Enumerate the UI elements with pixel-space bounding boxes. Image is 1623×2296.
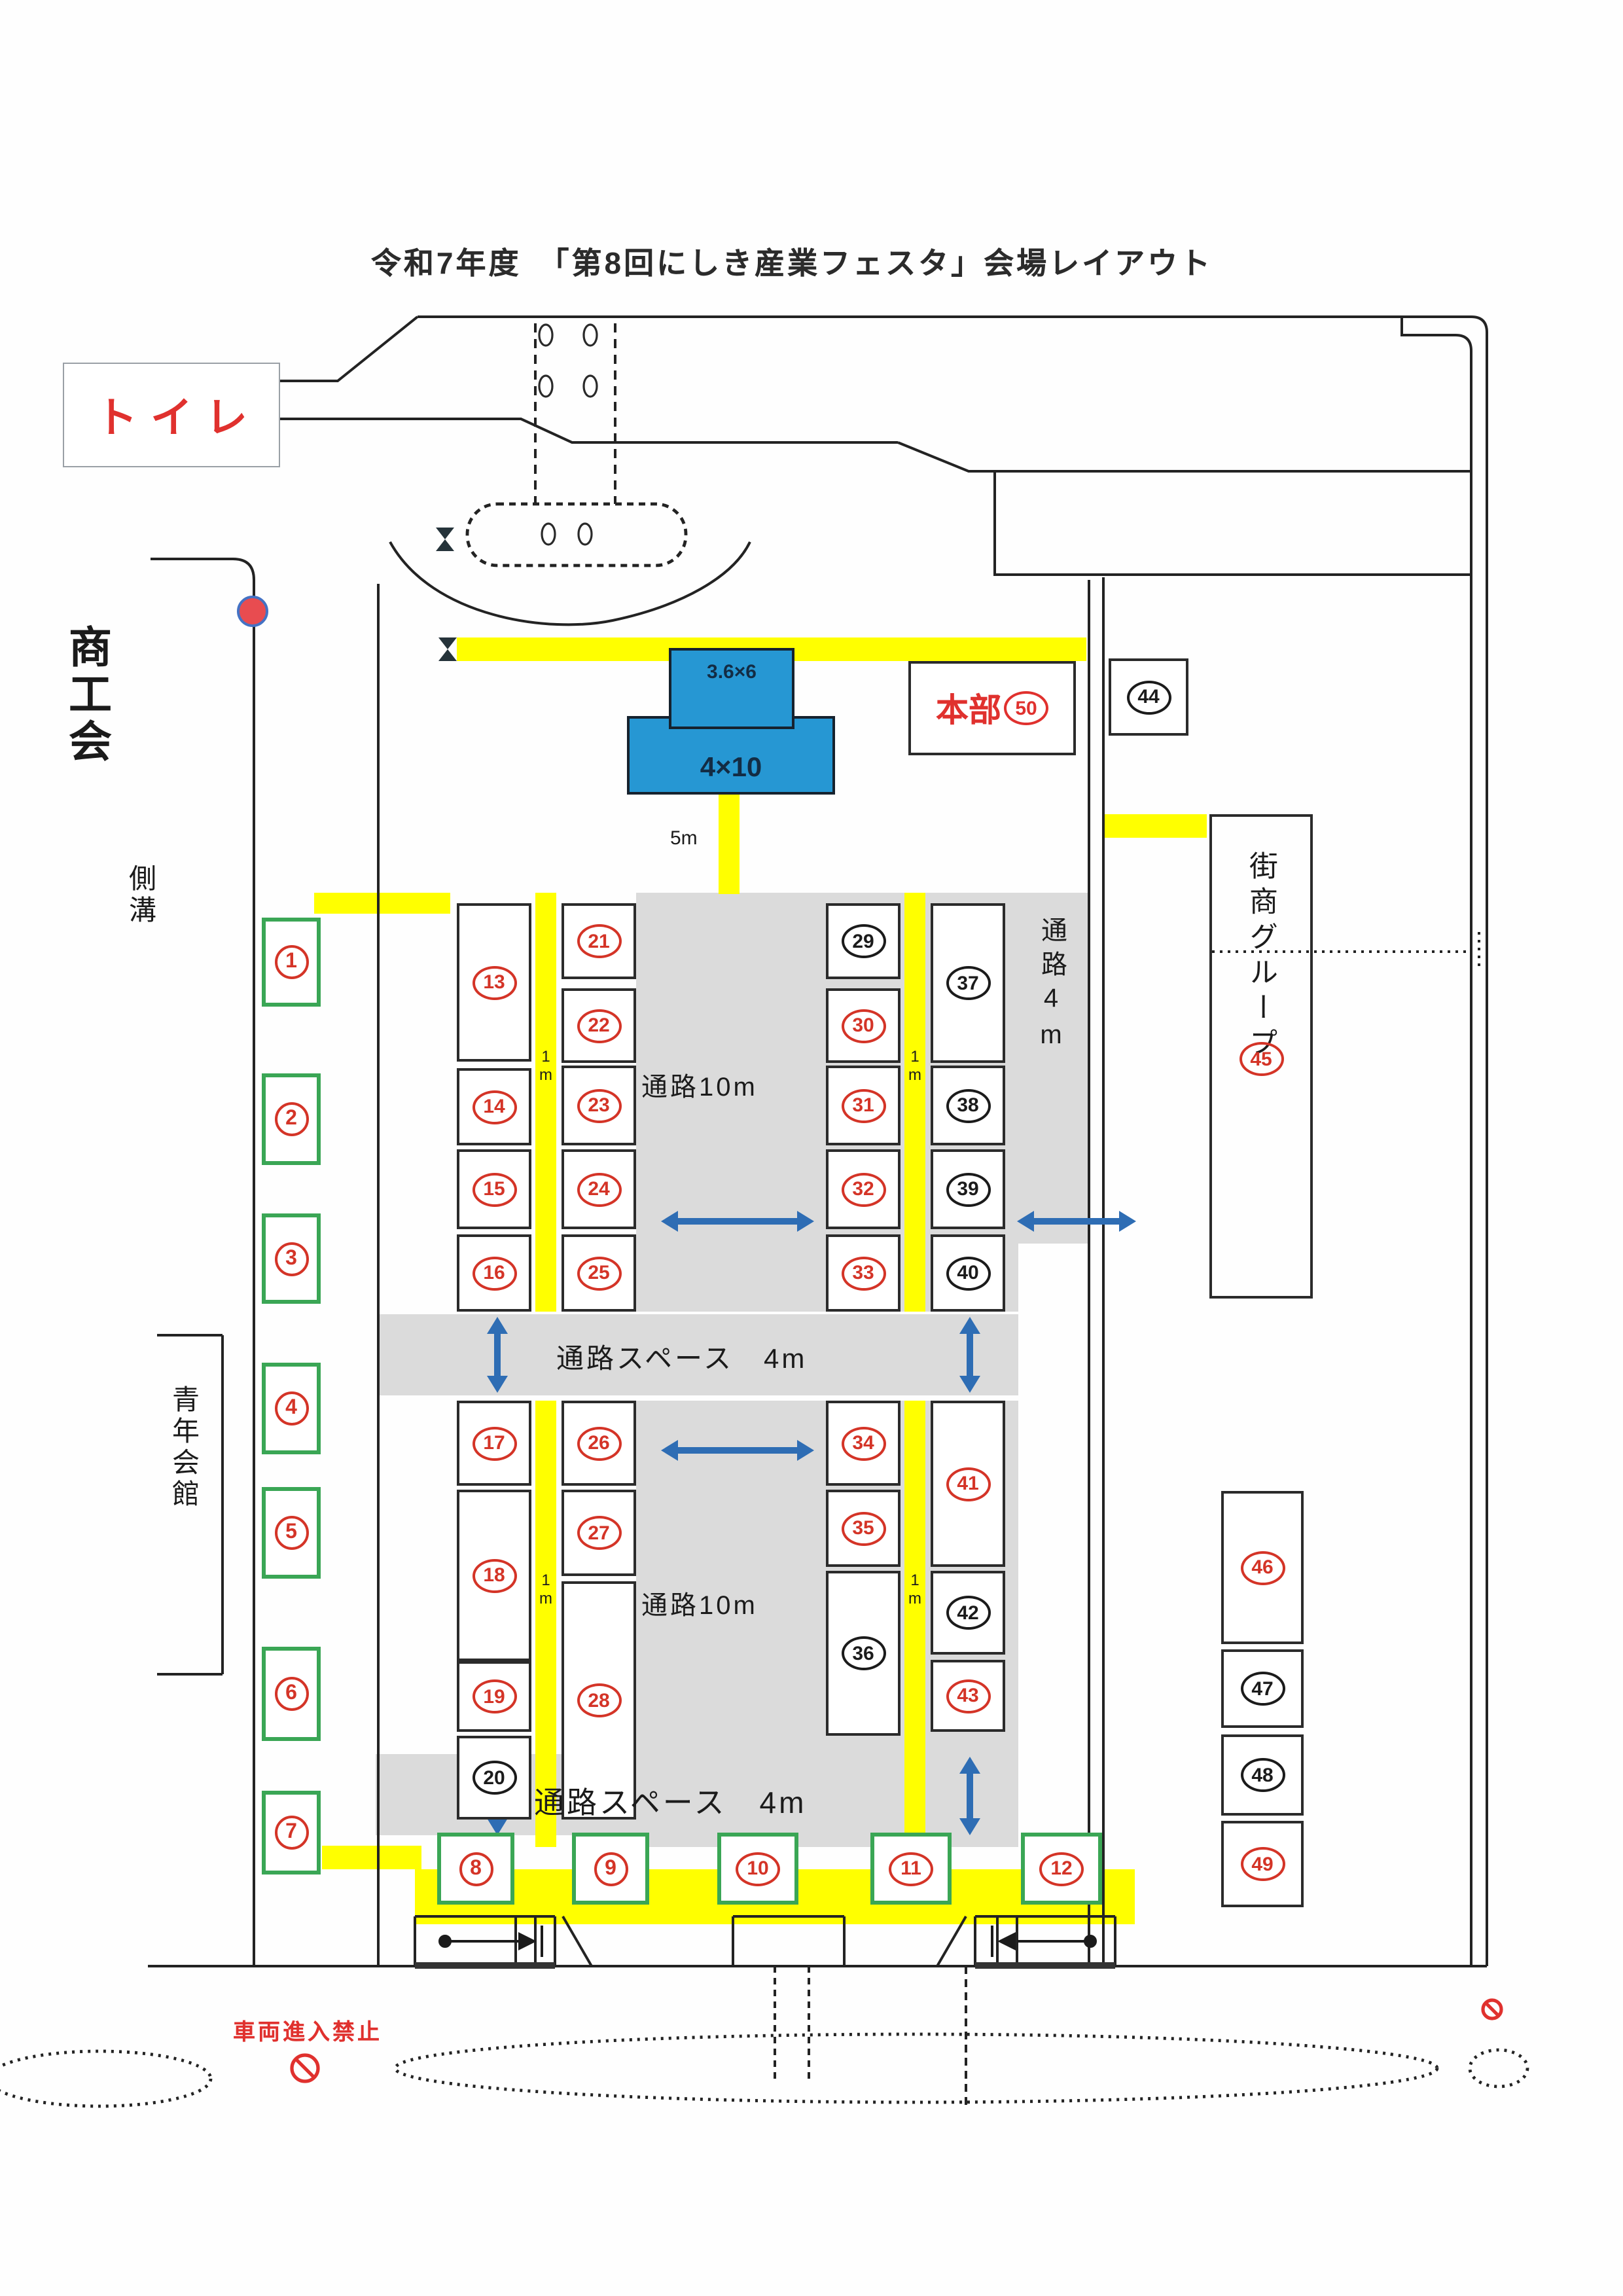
booth-5: 5 xyxy=(262,1487,321,1579)
entrance-bay-curve xyxy=(390,542,750,624)
booth-46: 46 xyxy=(1221,1491,1304,1644)
booth-9: 9 xyxy=(572,1833,649,1905)
booth-number: 49 xyxy=(1240,1847,1285,1881)
booth-number: 9 xyxy=(594,1852,628,1886)
booth-25: 25 xyxy=(562,1234,636,1312)
booth-number: 17 xyxy=(472,1426,516,1460)
gate-arrow-right xyxy=(450,1926,542,1957)
booth-number: 4 xyxy=(274,1391,308,1426)
road-toilet-north xyxy=(277,317,418,381)
booth-number: 43 xyxy=(946,1679,990,1713)
booth-15: 15 xyxy=(457,1149,531,1229)
booth-47: 47 xyxy=(1221,1649,1304,1728)
hq-box: 本部 50 xyxy=(908,661,1076,755)
booth-number: 24 xyxy=(577,1172,621,1206)
booth-number: 7 xyxy=(274,1816,308,1850)
no-entry-slash-small xyxy=(1486,2003,1499,2016)
tree-icon xyxy=(539,376,552,397)
gap-1m-label: 1m xyxy=(906,1047,924,1084)
booth-31: 31 xyxy=(826,1066,901,1145)
yellow-strip-bottom-thin xyxy=(322,1846,421,1869)
aisle-space-upper-label: 通路スペース 4m xyxy=(556,1338,807,1377)
road-island-right xyxy=(1470,2050,1527,2087)
lot-north-notch xyxy=(995,471,1471,575)
yellow-strip-1m-upper-right xyxy=(904,893,925,1312)
gate-arrow-dot xyxy=(440,1936,450,1946)
booth-number: 16 xyxy=(472,1256,516,1290)
tent-4x10-label: 4×10 xyxy=(700,753,762,792)
tent-3.6x6-label: 3.6×6 xyxy=(707,651,757,683)
yellow-strip-gaishou xyxy=(1103,814,1207,838)
tent-3.6x6: 3.6×6 xyxy=(669,648,794,729)
no-entry-icon xyxy=(292,2055,318,2081)
booth-number: 39 xyxy=(946,1172,990,1206)
aisle-10m-upper-label: 通路10m xyxy=(641,1066,758,1103)
tree-icon xyxy=(539,325,552,346)
booth-14: 14 xyxy=(457,1068,531,1145)
booth-number: 44 xyxy=(1126,680,1171,714)
hq-number: 50 xyxy=(1004,691,1048,725)
booth-number: 48 xyxy=(1240,1758,1285,1792)
tree-icon xyxy=(542,524,555,545)
booth-17: 17 xyxy=(457,1401,531,1486)
booth-number: 21 xyxy=(577,924,621,958)
toilet-label: トイレ xyxy=(82,385,260,445)
booth-number: 14 xyxy=(472,1090,516,1124)
street-vendor-number: 45 xyxy=(1239,1042,1283,1076)
booth-11: 11 xyxy=(870,1833,952,1905)
approach-5m-label: 5m xyxy=(670,827,698,850)
booth-3: 3 xyxy=(262,1213,321,1304)
booth-number: 47 xyxy=(1240,1672,1285,1706)
no-entry-icon-small xyxy=(1483,2000,1501,2018)
booth-number: 15 xyxy=(472,1172,516,1206)
booth-36: 36 xyxy=(826,1571,901,1736)
booth-32: 32 xyxy=(826,1149,901,1229)
booth-number: 13 xyxy=(472,965,516,999)
booth-number: 32 xyxy=(841,1172,885,1206)
booth-7: 7 xyxy=(262,1791,321,1874)
booth-13: 13 xyxy=(457,903,531,1062)
booth-37: 37 xyxy=(931,903,1005,1063)
booth-number: 46 xyxy=(1240,1551,1285,1585)
booth-number: 18 xyxy=(472,1558,516,1592)
booth-35: 35 xyxy=(826,1490,901,1567)
booth-number: 2 xyxy=(274,1102,308,1136)
aisle-10m-lower-label: 通路10m xyxy=(641,1584,758,1622)
no-entry-slash xyxy=(296,2059,314,2077)
gate-right-threshold xyxy=(975,1962,1115,1969)
booth-41: 41 xyxy=(931,1401,1005,1567)
booth-6: 6 xyxy=(262,1647,321,1741)
booth-number: 36 xyxy=(841,1636,885,1670)
booth-49: 49 xyxy=(1221,1821,1304,1907)
no-vehicle-entry-label: 車両進入禁止 xyxy=(233,2013,382,2046)
booth-16: 16 xyxy=(457,1234,531,1312)
booth-number: 6 xyxy=(274,1677,308,1711)
youth-hall-label: 青年会館 xyxy=(164,1385,203,1511)
yellow-strip-1m-upper-left xyxy=(535,893,556,1312)
booth-33: 33 xyxy=(826,1234,901,1312)
booth-44: 44 xyxy=(1109,658,1188,736)
booth-number: 5 xyxy=(274,1516,308,1550)
booth-number: 41 xyxy=(946,1467,990,1501)
booth-22: 22 xyxy=(562,988,636,1063)
chamber-of-commerce-label: 商工会 xyxy=(55,624,118,766)
booth-number: 27 xyxy=(577,1516,621,1550)
tree-icon xyxy=(584,376,597,397)
road-toilet-south xyxy=(277,419,898,442)
signal-dot-icon xyxy=(238,597,267,626)
booth-number: 37 xyxy=(946,966,990,1000)
booth-number: 30 xyxy=(841,1009,885,1043)
road-right-inner xyxy=(1402,317,1471,1966)
booth-42: 42 xyxy=(931,1571,1005,1655)
bowtie-icon xyxy=(438,637,457,661)
street-vendor-group-box: 街商グループ 45 xyxy=(1209,814,1313,1299)
booth-number: 8 xyxy=(459,1852,493,1886)
booth-number: 10 xyxy=(736,1852,780,1886)
booth-number: 1 xyxy=(274,945,308,979)
booth-number: 40 xyxy=(946,1256,990,1290)
yellow-strip-5m xyxy=(719,795,740,894)
booth-21: 21 xyxy=(562,903,636,979)
booth-39: 39 xyxy=(931,1149,1005,1229)
booth-23: 23 xyxy=(562,1066,636,1145)
booth-24: 24 xyxy=(562,1149,636,1229)
booth-1: 1 xyxy=(262,918,321,1007)
aisle-space-lower-label: 通路スペース 4m xyxy=(534,1778,806,1822)
booth-number: 38 xyxy=(946,1088,990,1122)
booth-number: 22 xyxy=(577,1009,621,1043)
booth-2: 2 xyxy=(262,1073,321,1165)
booth-number: 33 xyxy=(841,1256,885,1290)
road-island-center xyxy=(395,2034,1437,2102)
aisle-4m-label: 通路4m xyxy=(1033,916,1071,1058)
gate-left-threshold xyxy=(415,1962,555,1969)
booth-number: 34 xyxy=(841,1426,885,1460)
booth-number: 19 xyxy=(472,1679,516,1713)
tree-icon xyxy=(584,325,597,346)
booth-38: 38 xyxy=(931,1066,1005,1145)
booth-12: 12 xyxy=(1021,1833,1102,1905)
gap-1m-label: 1m xyxy=(537,1571,555,1607)
hq-label: 本部 xyxy=(936,685,1001,732)
booth-number: 3 xyxy=(274,1242,308,1276)
street-vendor-group-label: 街商グループ xyxy=(1240,851,1282,1063)
booth-19: 19 xyxy=(457,1661,531,1732)
booth-26: 26 xyxy=(562,1401,636,1486)
booth-4: 4 xyxy=(262,1363,321,1454)
booth-number: 28 xyxy=(577,1683,621,1717)
booth-29: 29 xyxy=(826,903,901,979)
page-title: 令和7年度 「第8回にしき産業フェスタ」会場レイアウト xyxy=(209,238,1374,283)
booth-number: 26 xyxy=(577,1426,621,1460)
booth-number: 29 xyxy=(841,924,885,958)
booth-number: 25 xyxy=(577,1256,621,1290)
booth-number: 23 xyxy=(577,1088,621,1122)
booth-number: 42 xyxy=(946,1596,990,1630)
tree-icon xyxy=(579,524,592,545)
roundabout-dashed xyxy=(467,504,686,565)
gap-1m-label: 1m xyxy=(537,1047,555,1084)
booth-number: 20 xyxy=(472,1761,516,1795)
booth-18: 18 xyxy=(457,1490,531,1661)
booth-number: 31 xyxy=(841,1088,885,1122)
booth-number: 11 xyxy=(889,1852,933,1886)
venue-layout-page: 令和7年度 「第8回にしき産業フェスタ」会場レイアウト トイレ 商工会 側溝 青… xyxy=(0,0,1623,2296)
gate-arrow-dot xyxy=(1085,1936,1096,1946)
booth-number: 12 xyxy=(1039,1852,1084,1886)
road-left-edge xyxy=(151,559,254,1966)
bowtie-icon xyxy=(436,528,454,551)
toilet-box: トイレ xyxy=(63,363,280,467)
booth-10: 10 xyxy=(717,1833,798,1905)
booth-30: 30 xyxy=(826,988,901,1063)
gap-1m-label: 1m xyxy=(906,1571,924,1607)
road-east-south-edge xyxy=(898,442,1471,471)
booth-20: 20 xyxy=(457,1736,531,1820)
booth-27: 27 xyxy=(562,1490,636,1576)
booth-8: 8 xyxy=(437,1833,514,1905)
gate-arrow-left xyxy=(992,1926,1085,1957)
booth-43: 43 xyxy=(931,1660,1005,1732)
booth-number: 35 xyxy=(841,1511,885,1545)
booth-40: 40 xyxy=(931,1234,1005,1312)
gutter-label: 側溝 xyxy=(120,864,160,927)
road-island-left xyxy=(0,2051,211,2106)
yellow-strip-left xyxy=(314,893,450,914)
booth-34: 34 xyxy=(826,1401,901,1486)
booth-48: 48 xyxy=(1221,1734,1304,1816)
yellow-strip-1m-lower-right xyxy=(904,1401,925,1847)
